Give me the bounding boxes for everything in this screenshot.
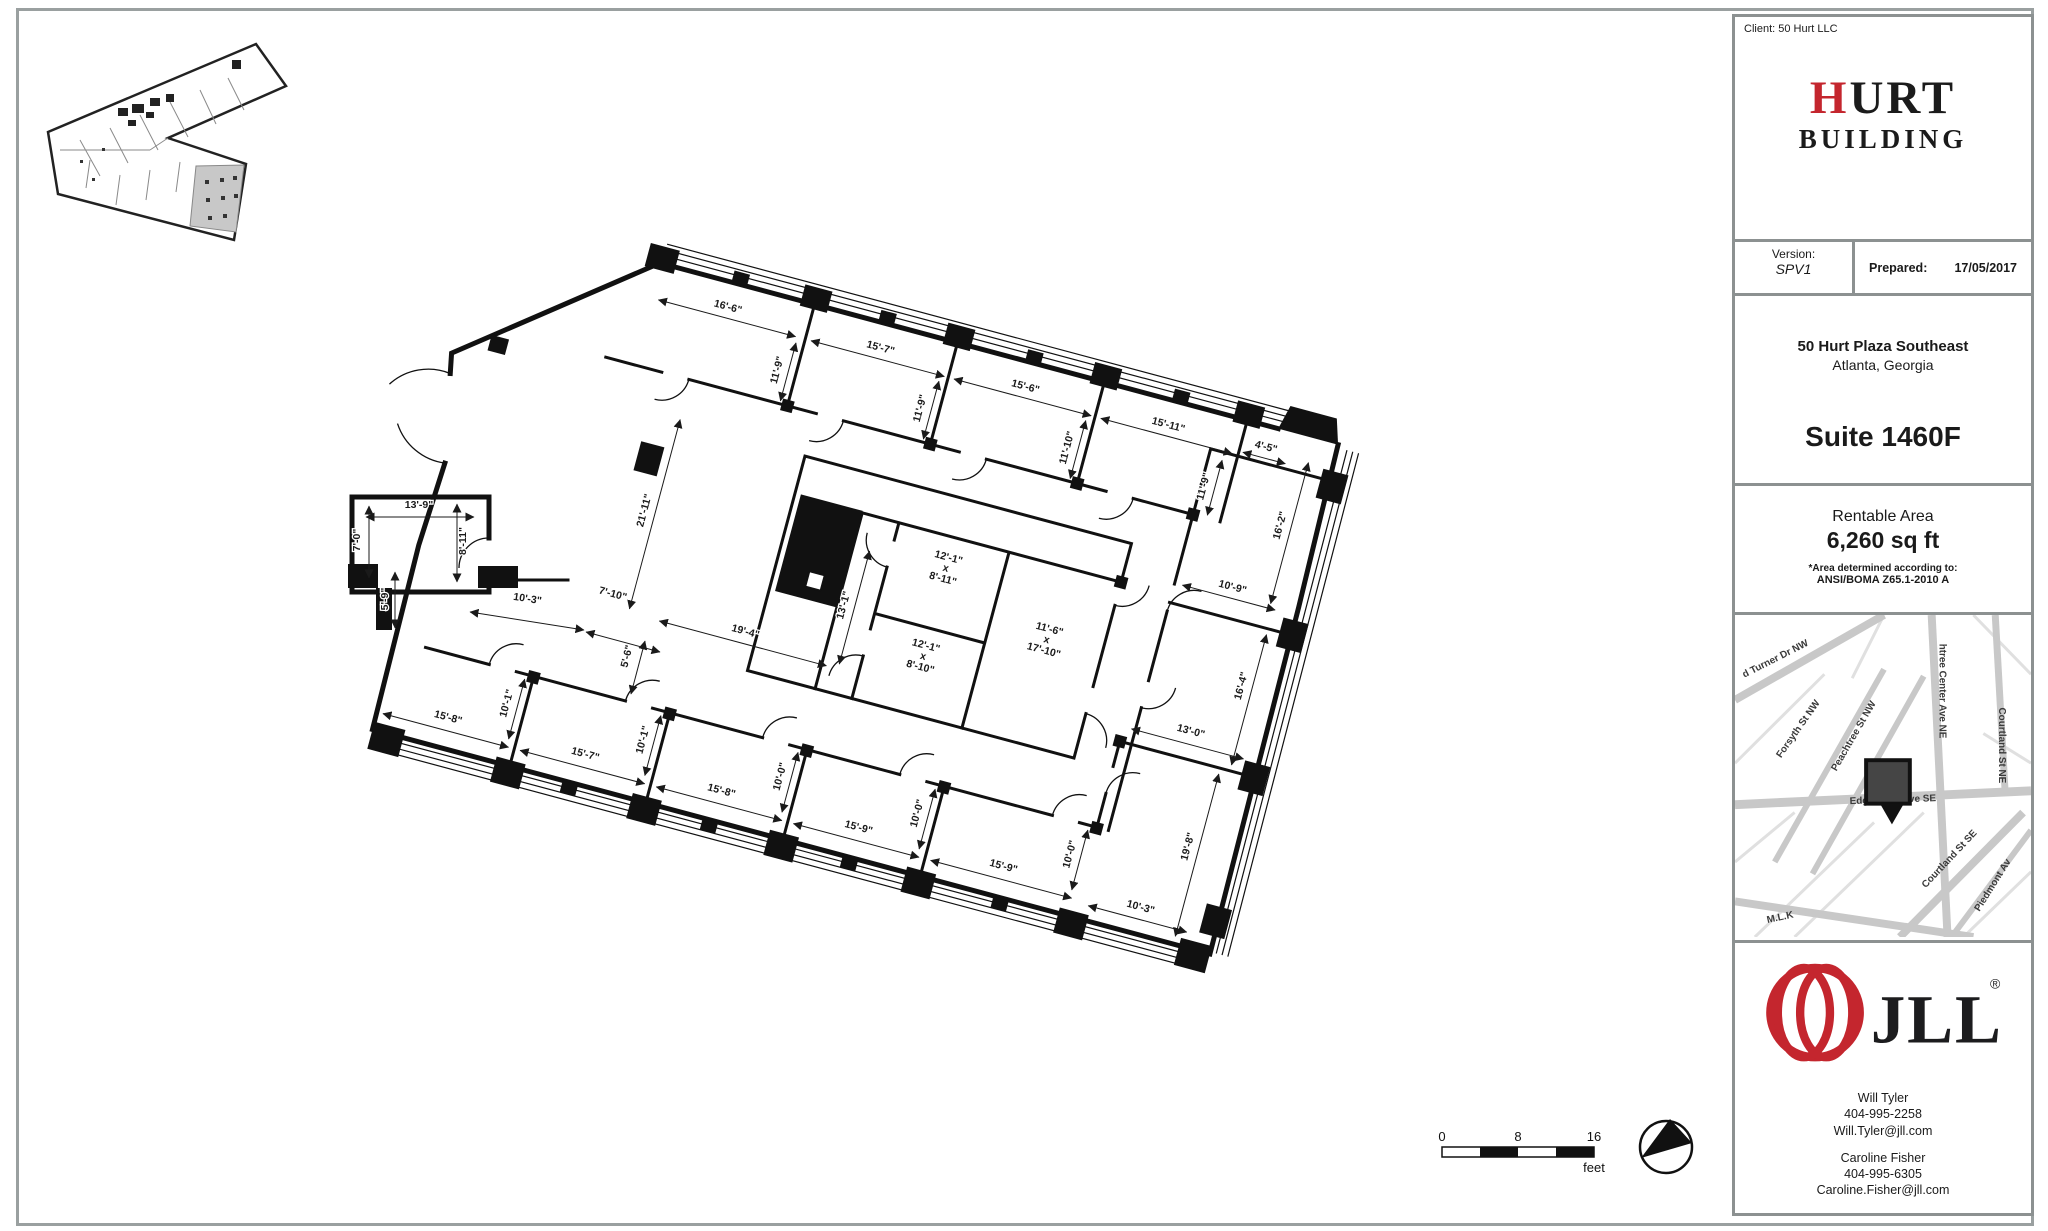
street-label: Forsyth St NW [1774, 698, 1823, 760]
contact-2: Caroline Fisher 404-995-6305 Caroline.Fi… [1735, 1150, 2031, 1199]
contact-phone: 404-995-6305 [1735, 1166, 2031, 1182]
hurt-building-logo: HURT BUILDING [1735, 75, 2031, 155]
dimension-label: 4'-5" [1254, 438, 1279, 455]
dimension-line [1207, 460, 1222, 515]
contact-name: Will Tyler [1735, 1090, 2031, 1106]
rentable-area-section: Rentable Area 6,260 sq ft *Area determin… [1735, 486, 2031, 615]
dimension-label: 7'-0" [351, 529, 363, 552]
dimension-label: 10'-1" [634, 725, 653, 756]
north-arrow-icon [1640, 1119, 1692, 1173]
address-section: 50 Hurt Plaza Southeast Atlanta, Georgia… [1735, 296, 2031, 486]
suite-highlight [190, 165, 244, 232]
dimension-label: 10'-3" [1125, 898, 1156, 917]
dimension-label: 11'-9" [768, 355, 787, 385]
jll-section: JLL ® Will Tyler 404-995-2258 Will.Tyler… [1735, 943, 2031, 1213]
dimension-label: 5'-6" [619, 644, 636, 669]
dimension-label: 15'-7" [570, 745, 601, 764]
street-label: Courtland St NE [1996, 708, 2007, 784]
street-label: M.L.K [1766, 909, 1796, 925]
rentable-area-label: Rentable Area [1735, 508, 2031, 526]
area-standard: ANSI/BOMA Z65.1-2010 A [1735, 574, 2031, 586]
scale-tick: 0 [1438, 1129, 1445, 1144]
rentable-area-value: 6,260 sq ft [1735, 527, 2031, 554]
dimension-label: 10'-0" [1060, 839, 1079, 870]
dimension-label: 15'-9" [988, 857, 1019, 876]
dimension-label: 15'-9" [843, 818, 874, 837]
version-label: Version: [1735, 247, 1852, 261]
jll-wordmark: JLL [1871, 981, 2003, 1057]
jll-logo: JLL ® [1757, 953, 2009, 1074]
dimension-label: 19'-8" [1178, 831, 1197, 862]
dimension-label: 10'-9" [1217, 578, 1248, 597]
dimension-label: 11'-9" [1194, 471, 1213, 501]
street-label: htree Center Ave NE [1937, 644, 1948, 739]
logo-letter-h: H [1810, 72, 1850, 124]
logo-section: Client: 50 Hurt LLC HURT BUILDING [1735, 17, 2031, 242]
dimension-label: 10'-0" [908, 798, 927, 829]
dimension-label: 15'-8" [433, 708, 464, 727]
scale-tick: 16 [1587, 1129, 1601, 1144]
prepared-date: 17/05/2017 [1954, 261, 2017, 275]
area-note: *Area determined according to: [1735, 563, 2031, 574]
contact-email: Will.Tyler@jll.com [1735, 1123, 2031, 1139]
dimension-label: 21'-11" [634, 493, 654, 529]
prepared-label: Prepared: [1869, 261, 1927, 275]
dimension-label: 16'-6" [713, 298, 744, 317]
location-map: d Turner Dr NWForsyth St NWPeachtree St … [1735, 615, 2031, 943]
dimension-label: 16'-2" [1271, 510, 1290, 541]
suite-plan: 16'-6"15'-7"15'-6"15'-11"4'-5"11'-9"11'-… [297, 179, 1370, 978]
dimension-label: 15'-8" [706, 781, 737, 800]
registered-mark: ® [1990, 975, 2001, 991]
dimension-label: 16'-4" [1232, 671, 1251, 702]
dimension-label: 11'-9" [911, 393, 930, 423]
dimension-label: 11'-10" [1057, 430, 1077, 466]
title-block: Client: 50 Hurt LLC HURT BUILDING Versio… [1732, 14, 2034, 1216]
dimension-label: 15'-6" [1010, 377, 1041, 396]
dimension-label: 10'-0" [771, 761, 790, 792]
street-label: Piedmont Av [1973, 857, 2014, 914]
scale-tick: 8 [1514, 1129, 1521, 1144]
dimension-line [470, 612, 584, 630]
version-value: SPV1 [1735, 261, 1852, 277]
contact-1: Will Tyler 404-995-2258 Will.Tyler@jll.c… [1735, 1090, 2031, 1139]
room-size-label: 17'-10" [1026, 640, 1062, 660]
room-size-label: 8'-10" [905, 658, 936, 677]
dimension-label: 13'-0" [1176, 722, 1207, 741]
dimension-label: 10'-3" [512, 591, 542, 607]
version-section: Version: SPV1 Prepared: 17/05/2017 [1735, 242, 2031, 296]
scale-bar: 0 8 16 feet [1438, 1129, 1605, 1175]
dimension-label: 15'-7" [865, 338, 896, 357]
dimension-label: 8'-11" [457, 527, 469, 555]
dimension-label: 5'-9" [379, 588, 391, 611]
logo-letters-urt: URT [1849, 72, 1956, 124]
address-line1: 50 Hurt Plaza Southeast [1735, 338, 2031, 355]
room-size-label: 8'-11" [928, 570, 958, 589]
contact-phone: 404-995-2258 [1735, 1106, 2031, 1122]
suite-title: Suite 1460F [1735, 421, 2031, 453]
dimension-label: 10'-1" [497, 688, 516, 719]
contact-name: Caroline Fisher [1735, 1150, 2031, 1166]
dimension-label: 13'-9" [405, 499, 434, 511]
map-marker [1866, 760, 1910, 824]
overview-floorplan [48, 44, 286, 240]
client-label: Client: 50 Hurt LLC [1744, 23, 1838, 35]
dimension-label: 15'-11" [1151, 415, 1187, 435]
dimension-label: 19'-4" [730, 622, 761, 641]
address-line2: Atlanta, Georgia [1735, 357, 2031, 373]
dimension-label: 7'-10" [597, 585, 628, 604]
contact-email: Caroline.Fisher@jll.com [1735, 1182, 2031, 1198]
logo-word-building: BUILDING [1735, 124, 2031, 155]
scale-unit: feet [1583, 1160, 1605, 1175]
